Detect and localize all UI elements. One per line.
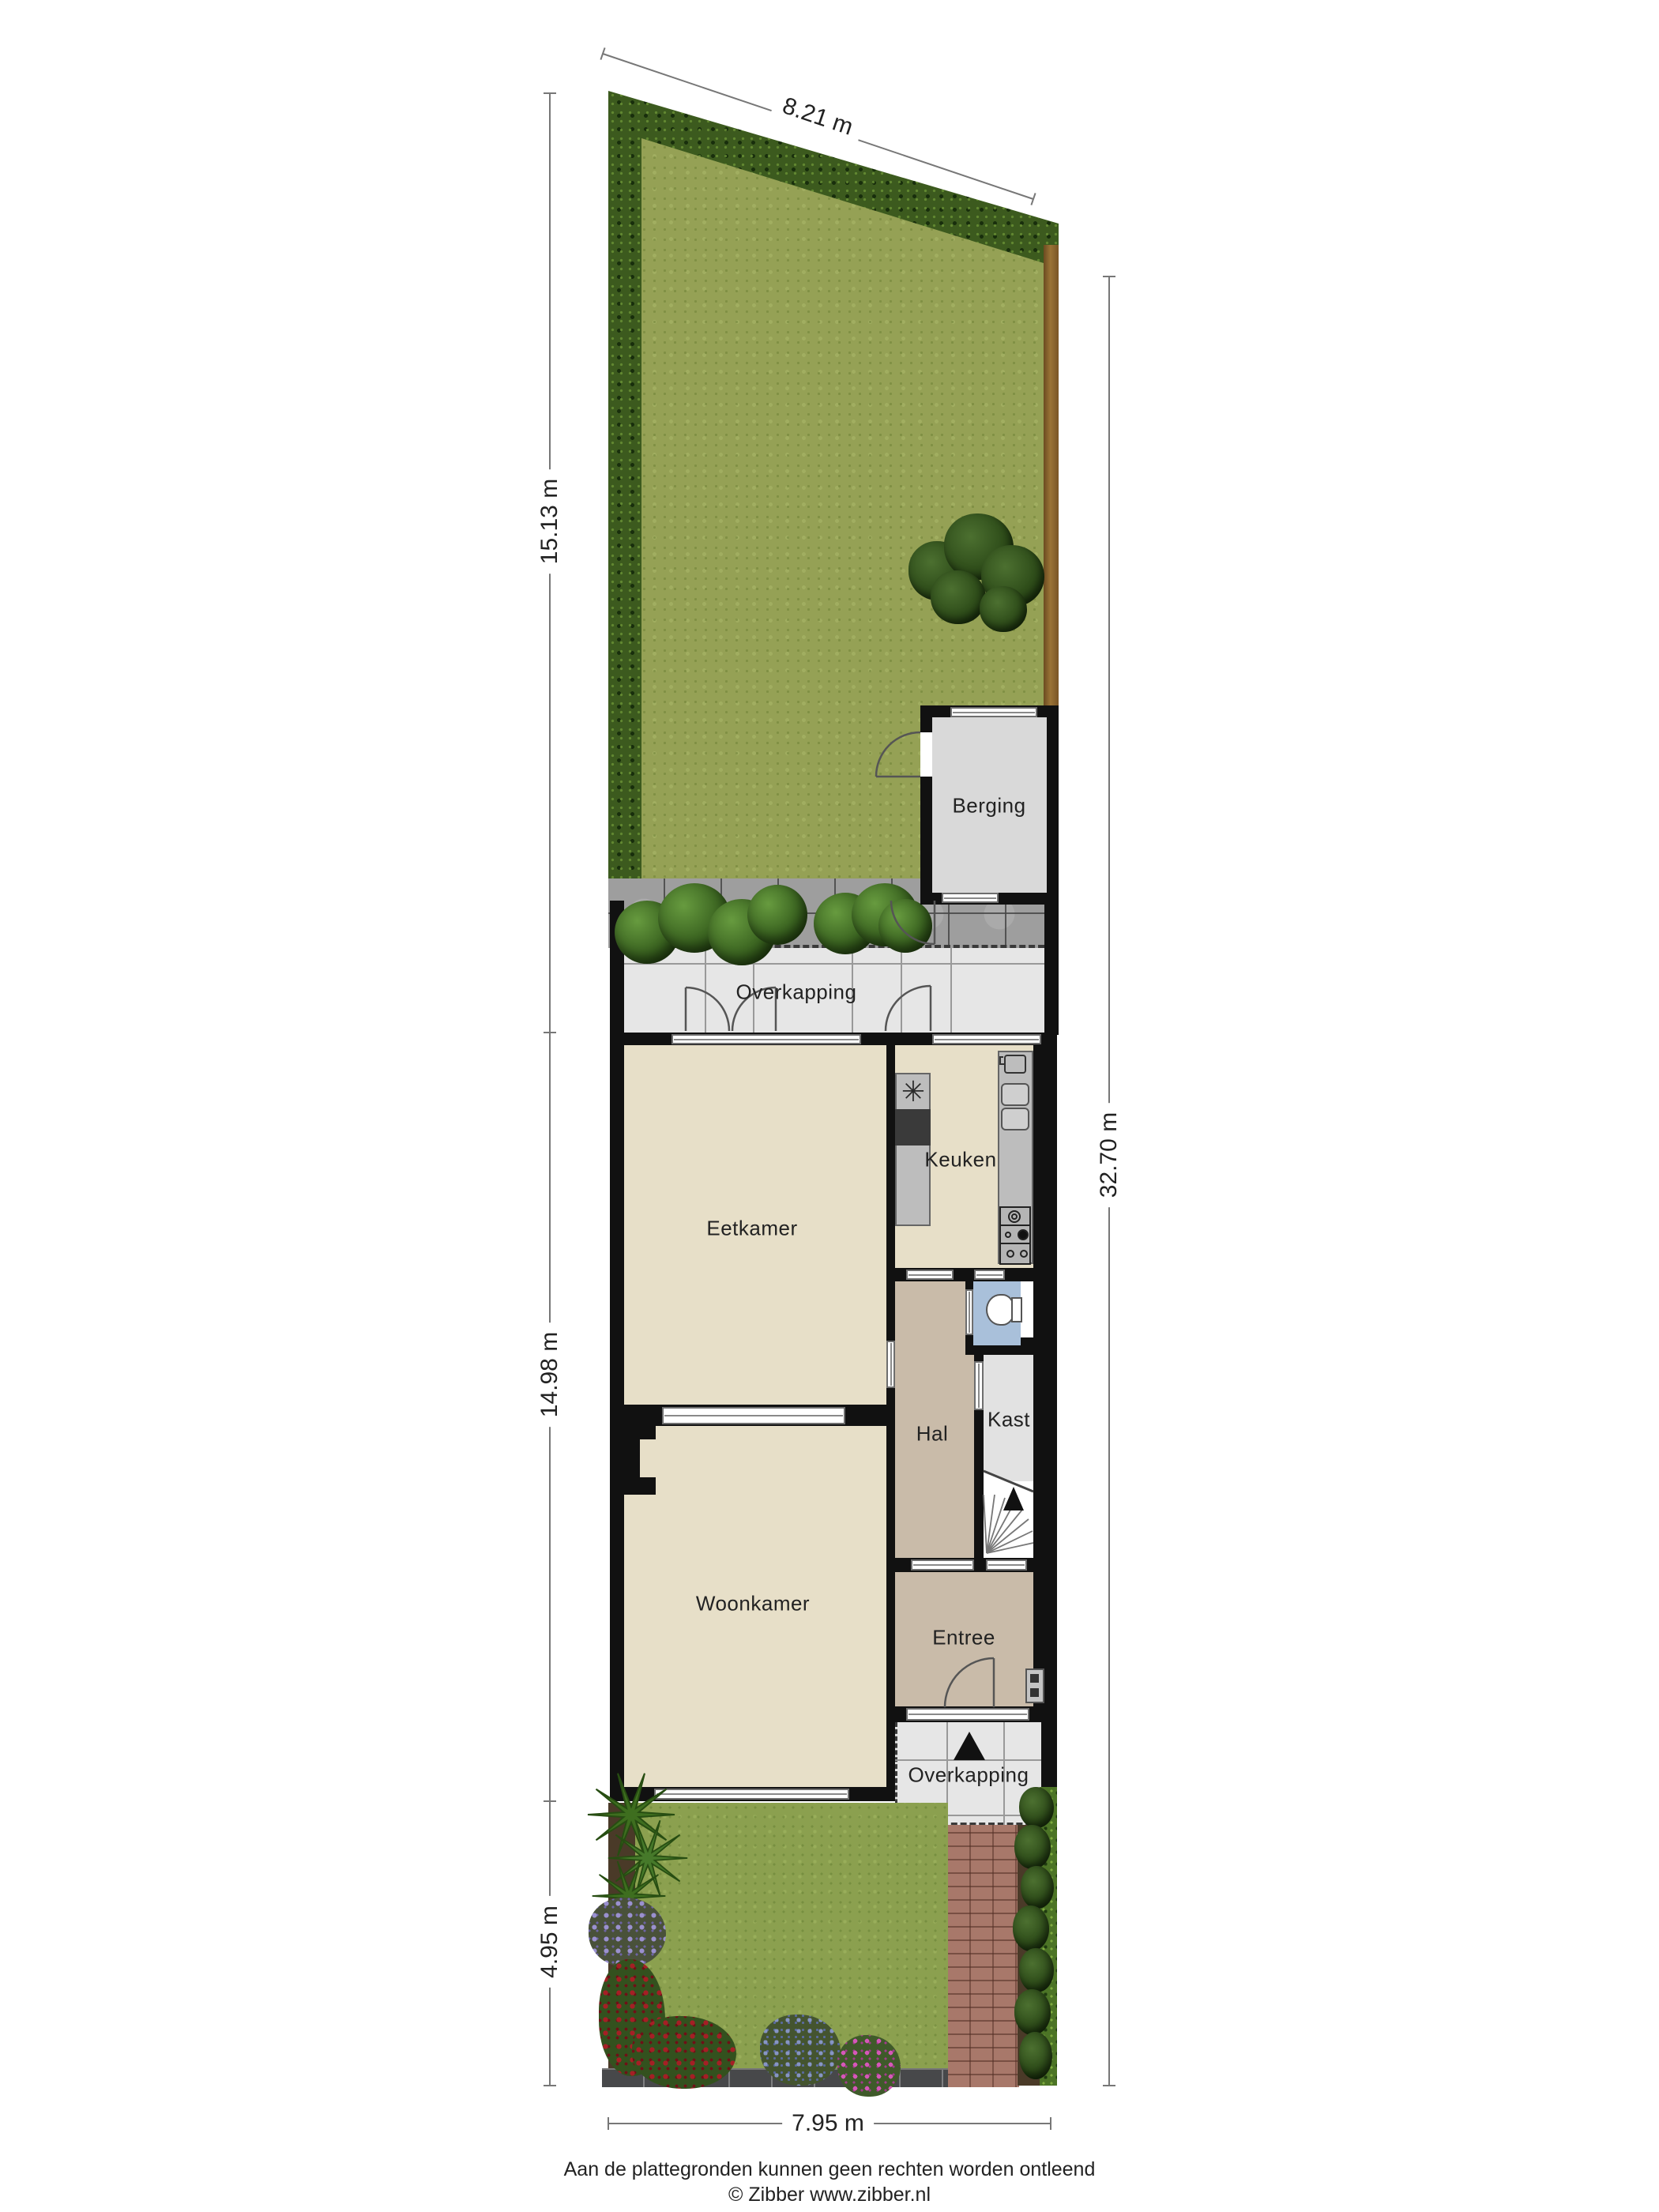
- kitchen-counter-right: [998, 1051, 1033, 1264]
- dim-left-front: 4.95 m: [535, 1896, 565, 1988]
- woonkamer-front-window: [654, 1789, 849, 1800]
- entree-front-door-window: [906, 1708, 1029, 1721]
- keuken-back-window: [932, 1034, 1041, 1044]
- room-label-woonkamer: Woonkamer: [696, 1592, 810, 1616]
- dim-bottom: 7.95 m: [782, 2109, 874, 2139]
- toilet-niche: [1021, 1281, 1033, 1337]
- dim-left-garden: 15.13 m: [535, 469, 565, 574]
- purple-flower-bush: [589, 1898, 666, 1967]
- ensuite-sliding-doors: [662, 1407, 845, 1424]
- eetkamer-hal-glass: [886, 1341, 895, 1388]
- overkapping-back-post: [950, 948, 952, 1033]
- overkapping-front-beam: [895, 1759, 1041, 1761]
- room-label-overkapping-front: Overkapping: [908, 1763, 1029, 1788]
- berging-window-top: [950, 707, 1037, 717]
- blue-flower-cluster: [760, 2014, 841, 2086]
- room-label-berging: Berging: [952, 794, 1025, 818]
- eetkamer-back-window: [671, 1034, 861, 1044]
- keuken-south-window-2: [974, 1270, 1005, 1280]
- chimney-niche: [640, 1439, 656, 1477]
- berging-window-bottom: [942, 893, 999, 903]
- stairs-area: [984, 1481, 1033, 1558]
- room-label-eetkamer: Eetkamer: [706, 1217, 797, 1241]
- front-brick-path: [948, 1825, 1019, 2087]
- extractor-icon: ✳: [901, 1078, 925, 1106]
- garden-bush-large: [908, 513, 1047, 636]
- room-label-hal: Hal: [916, 1422, 949, 1446]
- dim-left-house: 14.98 m: [535, 1322, 565, 1427]
- room-label-overkapping-back: Overkapping: [736, 980, 857, 1005]
- berging-door-opening: [920, 732, 932, 777]
- footer-credit: © Zibber www.zibber.nl: [0, 2184, 1659, 2206]
- hal-floor: [895, 1281, 974, 1558]
- keuken-south-window-1: [906, 1270, 954, 1280]
- meter-icon: [1030, 1674, 1039, 1683]
- meter-icon: [1030, 1688, 1039, 1697]
- partition-window-1: [911, 1559, 974, 1571]
- side-wall-right: [1044, 905, 1059, 1035]
- partition-window-2: [986, 1559, 1027, 1571]
- floorplan-page: { "rooms": { "berging": "Berging", "over…: [0, 0, 1659, 2212]
- toilet-wall-glass: [965, 1289, 973, 1335]
- pink-flower-cluster: [837, 2035, 901, 2097]
- dim-right: 32.70 m: [1094, 1103, 1124, 1207]
- path-shrub-column: [1013, 1787, 1054, 2087]
- footer-disclaimer: Aan de plattegronden kunnen geen rechten…: [0, 2158, 1659, 2181]
- toilet-bowl: [986, 1294, 1014, 1326]
- room-label-kast: Kast: [987, 1408, 1030, 1432]
- kitchen-stove-block: [895, 1109, 931, 1145]
- meterkast: [1025, 1668, 1044, 1703]
- room-label-entree: Entree: [932, 1626, 995, 1650]
- kast-wall-glass: [974, 1361, 984, 1410]
- toilet-room: [965, 1281, 1033, 1355]
- red-flower-bush-bottom: [632, 2016, 736, 2089]
- terrace-bush-row-right: [814, 883, 932, 970]
- room-label-keuken: Keuken: [924, 1148, 996, 1172]
- terrace-bush-row-left: [615, 878, 808, 975]
- toilet-tank: [1011, 1297, 1022, 1322]
